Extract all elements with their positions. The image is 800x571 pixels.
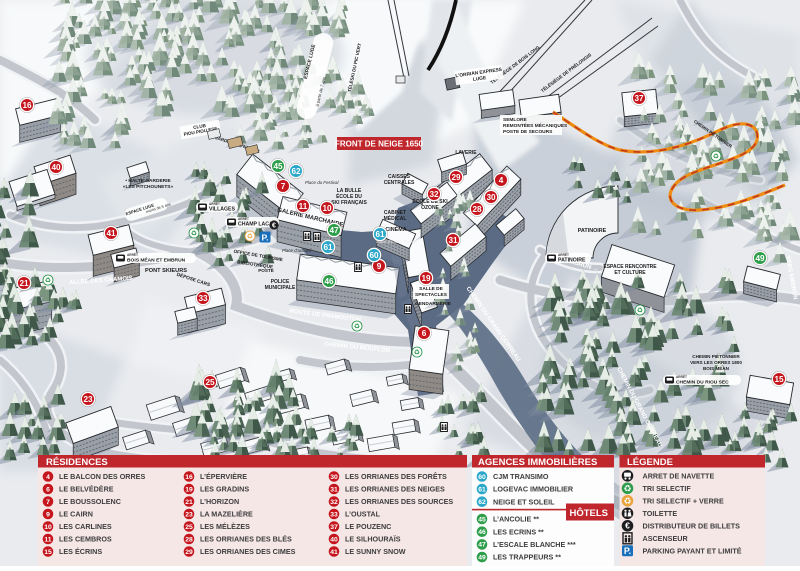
svg-text:ARRÊT: ARRÊT <box>127 252 138 257</box>
svg-text:♻: ♻ <box>414 348 420 357</box>
svg-text:19: 19 <box>421 274 431 283</box>
svg-text:31: 31 <box>448 236 458 245</box>
svg-text:CINÉMA: CINÉMA <box>385 225 406 233</box>
svg-text:9: 9 <box>377 262 382 271</box>
svg-text:7: 7 <box>281 182 286 191</box>
svg-text:POSTE: POSTE <box>258 268 274 273</box>
svg-text:49: 49 <box>755 254 765 263</box>
svg-text:LES GRADINS: LES GRADINS <box>200 485 249 494</box>
svg-text:LES TRAPPEURS **: LES TRAPPEURS ** <box>493 553 561 562</box>
svg-text:RÉSIDENCES: RÉSIDENCES <box>46 457 108 468</box>
svg-text:25: 25 <box>185 524 193 531</box>
svg-text:LE POUZENC: LE POUZENC <box>345 522 391 531</box>
svg-text:LE BOUSSOLENC: LE BOUSSOLENC <box>59 497 121 506</box>
svg-text:SPECTACLES: SPECTACLES <box>415 292 448 298</box>
svg-text:LOGEVAC IMMOBILIER: LOGEVAC IMMOBILIER <box>493 485 574 494</box>
svg-text:41: 41 <box>106 229 116 238</box>
svg-text:♻: ♻ <box>713 152 719 161</box>
svg-text:TOILETTE: TOILETTE <box>643 509 678 518</box>
svg-text:10: 10 <box>322 204 332 213</box>
svg-text:LA MAZELIÈRE: LA MAZELIÈRE <box>200 510 253 519</box>
svg-text:9: 9 <box>46 511 50 518</box>
svg-text:LE SUNNY SNOW: LE SUNNY SNOW <box>345 547 406 556</box>
svg-text:L’ÉPERVIÈRE: L’ÉPERVIÈRE <box>200 472 247 481</box>
svg-text:61: 61 <box>478 486 486 493</box>
svg-text:25: 25 <box>205 378 215 387</box>
svg-text:♻: ♻ <box>354 322 360 331</box>
svg-text:61: 61 <box>323 243 333 252</box>
svg-text:HÔTELS: HÔTELS <box>569 507 608 519</box>
svg-text:OZONE: OZONE <box>421 205 439 211</box>
svg-text:VERS LES ORRES 1800: VERS LES ORRES 1800 <box>690 360 742 365</box>
svg-text:46: 46 <box>324 277 334 286</box>
svg-text:CHEMIN DU RIOU SEC: CHEMIN DU RIOU SEC <box>676 379 729 385</box>
svg-text:62: 62 <box>478 499 486 506</box>
svg-text:ARRÊT: ARRÊT <box>238 216 249 221</box>
svg-text:CJM TRANSIMO: CJM TRANSIMO <box>493 472 549 481</box>
svg-text:28: 28 <box>472 205 482 214</box>
svg-text:TRI SELECTIF + VERRE: TRI SELECTIF + VERRE <box>643 496 724 505</box>
svg-text:TRI SELECTIF: TRI SELECTIF <box>643 484 692 493</box>
svg-text:60: 60 <box>369 251 379 260</box>
svg-text:DISTRIBUTEUR DE BILLETS: DISTRIBUTEUR DE BILLETS <box>643 521 741 530</box>
svg-text:LES ORRIANES DES FORÊTS: LES ORRIANES DES FORÊTS <box>345 472 447 481</box>
svg-text:33: 33 <box>198 294 208 303</box>
svg-text:6: 6 <box>422 329 427 338</box>
svg-text:45: 45 <box>273 162 283 171</box>
svg-text:LAVERIE: LAVERIE <box>455 150 477 156</box>
svg-text:LE SILHOURAÏS: LE SILHOURAÏS <box>345 535 401 544</box>
svg-text:SKI FRANÇAIS: SKI FRANÇAIS <box>331 200 367 206</box>
svg-text:LES ECRINS **: LES ECRINS ** <box>493 527 544 536</box>
svg-text:32: 32 <box>330 499 338 506</box>
svg-text:47: 47 <box>329 226 339 235</box>
svg-text:♻: ♻ <box>247 232 253 241</box>
svg-text:NEIGE ET SOLEIL: NEIGE ET SOLEIL <box>493 497 555 506</box>
svg-text:ASCENSEUR: ASCENSEUR <box>643 534 689 543</box>
svg-text:23: 23 <box>185 511 193 518</box>
svg-text:LE CAIRN: LE CAIRN <box>59 510 93 519</box>
svg-text:MUNICIPALE: MUNICIPALE <box>265 285 296 291</box>
svg-text:SEMLORE: SEMLORE <box>503 117 528 123</box>
svg-text:♻: ♻ <box>623 483 631 493</box>
svg-text:46: 46 <box>478 529 486 536</box>
svg-text:«LES PITCHOUNETS»: «LES PITCHOUNETS» <box>123 184 174 190</box>
svg-text:L’ANCOLIE **: L’ANCOLIE ** <box>493 515 539 524</box>
svg-text:♻: ♻ <box>623 496 631 506</box>
svg-text:4: 4 <box>499 176 504 185</box>
svg-text:SALLE DE: SALLE DE <box>419 286 444 292</box>
svg-text:37: 37 <box>330 524 338 531</box>
svg-text:28: 28 <box>185 536 193 543</box>
svg-text:10: 10 <box>44 524 52 531</box>
svg-text:P.: P. <box>624 546 631 556</box>
svg-text:ET CULTURE: ET CULTURE <box>614 270 646 276</box>
svg-text:FRONT DE NEIGE 1650: FRONT DE NEIGE 1650 <box>335 140 424 149</box>
svg-text:15: 15 <box>774 375 784 384</box>
svg-text:LES ORRIANES DES SOURCES: LES ORRIANES DES SOURCES <box>345 497 453 506</box>
svg-text:16: 16 <box>22 101 32 110</box>
svg-text:Place du Festival: Place du Festival <box>305 180 339 185</box>
svg-text:21: 21 <box>185 499 193 506</box>
svg-text:40: 40 <box>330 536 338 543</box>
svg-text:CENTRALES: CENTRALES <box>384 180 415 186</box>
svg-text:29: 29 <box>451 173 461 182</box>
svg-text:23: 23 <box>83 395 93 404</box>
svg-text:P.: P. <box>261 232 268 242</box>
svg-text:GENDARMERIE: GENDARMERIE <box>415 301 452 307</box>
svg-text:L’HORIZON: L’HORIZON <box>200 497 239 506</box>
svg-text:49: 49 <box>478 554 486 561</box>
svg-text:6: 6 <box>46 486 50 493</box>
svg-text:21: 21 <box>19 279 29 288</box>
svg-text:CHEMIN PIÉTONNIER: CHEMIN PIÉTONNIER <box>692 352 740 359</box>
svg-text:ÉCOLE DU: ÉCOLE DU <box>336 192 362 200</box>
svg-text:29: 29 <box>185 549 193 556</box>
svg-text:MÉDICAL: MÉDICAL <box>384 214 407 222</box>
svg-text:LES ORRIANES DES CIMES: LES ORRIANES DES CIMES <box>200 547 296 556</box>
svg-text:45: 45 <box>478 516 486 523</box>
svg-text:60: 60 <box>478 474 486 481</box>
svg-text:L’OUSTAL: L’OUSTAL <box>345 510 381 519</box>
svg-text:37: 37 <box>634 94 644 103</box>
svg-text:33: 33 <box>330 511 338 518</box>
svg-text:LES MÉLÈZES: LES MÉLÈZES <box>200 522 250 531</box>
svg-text:LE BALCON DES ORRES: LE BALCON DES ORRES <box>59 472 145 481</box>
svg-text:PARKING PAYANT ET LIMITÉ: PARKING PAYANT ET LIMITÉ <box>643 546 742 555</box>
svg-text:11: 11 <box>299 202 308 211</box>
svg-text:€: € <box>272 223 276 230</box>
svg-text:32: 32 <box>429 190 439 199</box>
svg-text:€: € <box>625 521 630 531</box>
svg-text:ARRET DE NAVETTE: ARRET DE NAVETTE <box>643 471 715 480</box>
svg-text:• HALTE GARDERIE: • HALTE GARDERIE <box>125 178 171 184</box>
svg-text:15: 15 <box>44 549 52 556</box>
svg-text:POSTE DE SECOURS: POSTE DE SECOURS <box>503 129 553 135</box>
svg-text:ARRÊT: ARRÊT <box>558 252 569 257</box>
svg-text:LES ÉCRINS: LES ÉCRINS <box>59 547 102 556</box>
svg-text:62: 62 <box>291 167 301 176</box>
svg-text:4: 4 <box>46 474 50 481</box>
svg-text:16: 16 <box>185 474 193 481</box>
svg-text:LES ORRIANES DES NEIGES: LES ORRIANES DES NEIGES <box>345 485 445 494</box>
svg-text:30: 30 <box>486 193 496 202</box>
svg-text:BOIS MÉAN: BOIS MÉAN <box>703 364 730 371</box>
svg-text:VILLAGES: VILLAGES <box>209 206 235 212</box>
svg-text:30: 30 <box>330 474 338 481</box>
svg-text:LE BELVÉDÈRE: LE BELVÉDÈRE <box>59 485 114 494</box>
svg-text:PATINOIRE: PATINOIRE <box>558 257 586 263</box>
svg-text:47: 47 <box>478 542 486 549</box>
svg-text:PATINOIRE: PATINOIRE <box>578 228 607 234</box>
svg-text:LES CARLINES: LES CARLINES <box>59 522 112 531</box>
svg-text:LÉGENDE: LÉGENDE <box>627 457 673 468</box>
svg-text:11: 11 <box>44 536 51 543</box>
svg-text:61: 61 <box>375 230 385 239</box>
svg-text:♻: ♻ <box>637 306 643 315</box>
svg-text:LES CEMBROS: LES CEMBROS <box>59 535 112 544</box>
svg-text:LES ORRIANES DES BLÉS: LES ORRIANES DES BLÉS <box>200 535 292 544</box>
svg-text:19: 19 <box>185 486 193 493</box>
svg-text:ARRÊT: ARRÊT <box>209 201 220 206</box>
svg-text:31: 31 <box>330 486 338 493</box>
svg-text:7: 7 <box>46 499 50 506</box>
svg-text:41: 41 <box>330 549 338 556</box>
svg-text:40: 40 <box>51 163 61 172</box>
svg-text:♻: ♻ <box>191 229 197 238</box>
svg-text:AGENCES IMMOBILIÈRES: AGENCES IMMOBILIÈRES <box>478 457 597 468</box>
svg-text:♻: ♻ <box>45 276 51 285</box>
svg-text:L’ESCALE BLANCHE ***: L’ESCALE BLANCHE *** <box>493 540 576 549</box>
svg-text:Place d’accueil: Place d’accueil <box>282 248 312 253</box>
svg-text:ARRÊT: ARRÊT <box>676 374 687 379</box>
